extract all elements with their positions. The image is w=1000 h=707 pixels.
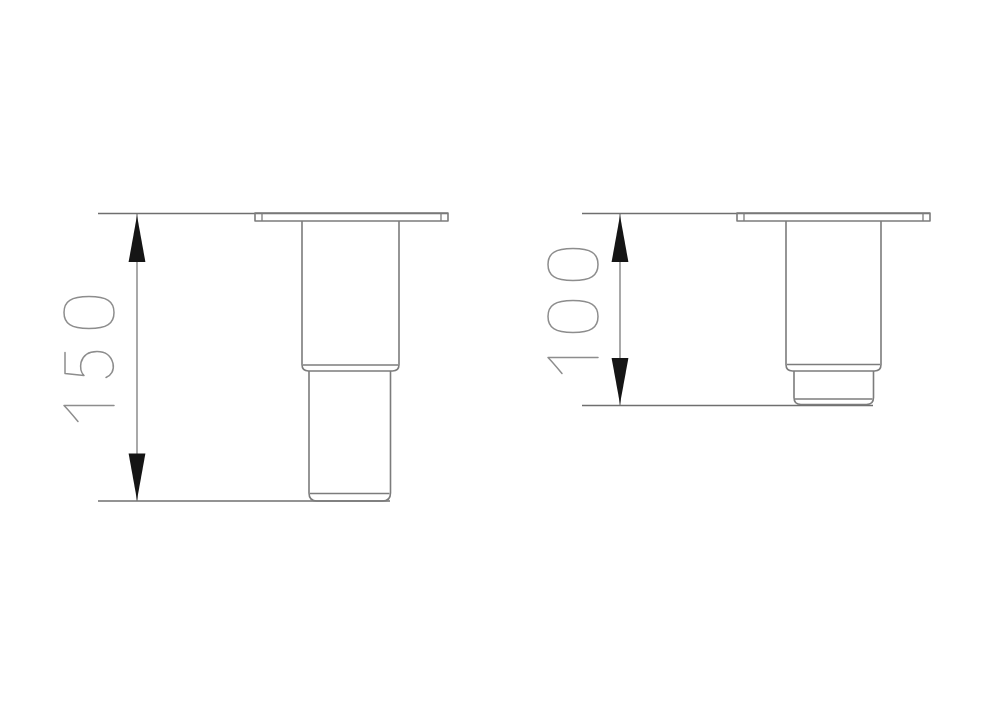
leg-foot [309, 371, 391, 501]
drawing-canvas [0, 0, 1000, 707]
dimension-digit [548, 301, 598, 333]
technical-drawing [0, 0, 1000, 707]
arrow-down-icon [612, 358, 629, 404]
arrow-up-icon [612, 216, 629, 263]
view-leg-150 [64, 213, 448, 501]
leg-body [786, 221, 881, 371]
leg-body [302, 221, 399, 371]
dimension-label [64, 297, 114, 422]
dimension-digit [548, 249, 598, 281]
arrow-up-icon [129, 216, 146, 263]
dimension-label [548, 249, 598, 374]
dimension-digit [64, 297, 114, 329]
dimension-digit [548, 358, 598, 374]
view-leg-100 [548, 213, 930, 406]
arrow-down-icon [129, 454, 146, 501]
dimension-digit [65, 352, 113, 378]
dimension-digit [64, 406, 114, 422]
